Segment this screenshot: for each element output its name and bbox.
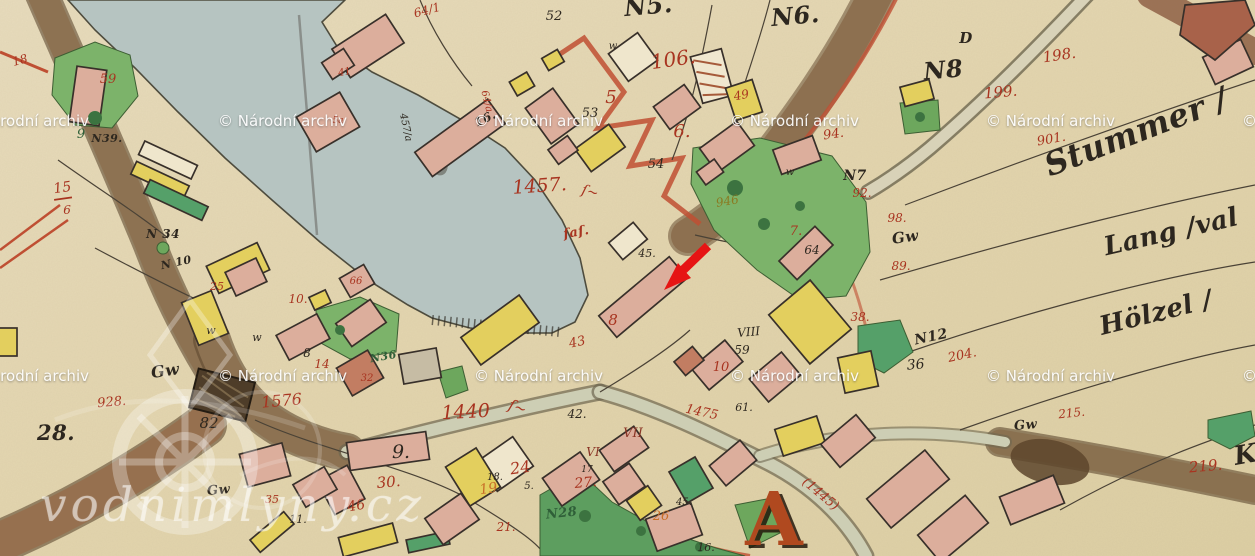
map-label: A <box>744 477 804 556</box>
map-label: 53 <box>582 106 599 121</box>
map-label: w <box>252 331 262 344</box>
map-label: w <box>786 167 795 178</box>
map-label: 54 <box>648 157 665 172</box>
map-label: 6 <box>63 203 71 217</box>
map-label: w <box>609 41 618 52</box>
map-label: 6. <box>673 121 690 142</box>
map-label: 24 <box>508 457 532 479</box>
map-label: Gw <box>1013 417 1038 434</box>
map-label: N6. <box>769 0 821 32</box>
map-label: N39. <box>90 132 122 145</box>
map-label: 8 <box>303 346 311 360</box>
map-label: 5a <box>332 116 343 126</box>
cadastral-map-image[interactable]: N5.106.N6.DN8198.199.901.Stummer /Lang /… <box>0 0 1255 556</box>
map-label: 92. <box>852 186 871 200</box>
map-label: 11. <box>289 513 307 526</box>
map-label: 26 <box>652 509 670 524</box>
map-label: 45. <box>637 247 656 260</box>
map-label: 7. <box>790 224 802 239</box>
map-label: Gw <box>891 226 921 248</box>
map-label: 27. <box>573 474 598 492</box>
map-label: 8 <box>608 311 618 329</box>
map-label: VII <box>623 426 644 441</box>
map-label: 14 <box>314 357 329 371</box>
map-label: N8 <box>921 53 964 85</box>
map-label: 215. <box>1057 405 1086 422</box>
map-label: 94. <box>822 126 845 144</box>
map-label: 219. <box>1187 456 1223 477</box>
map-label: 5 <box>605 87 616 108</box>
map-label: 89. <box>891 259 910 273</box>
map-label: 28. <box>36 420 75 445</box>
map-label: 98. <box>887 211 906 225</box>
map-label: 17 <box>581 465 593 475</box>
map-drawing: N5.106.N6.DN8198.199.901.Stummer /Lang /… <box>0 0 1255 556</box>
map-label: 52 <box>546 9 563 24</box>
map-label: 59 <box>100 72 117 87</box>
map-label: 10. <box>288 292 307 306</box>
map-label: 5. <box>524 481 534 492</box>
map-label: 64 <box>804 243 819 257</box>
map-label: VIII <box>737 324 761 340</box>
map-label: 59 <box>734 343 750 357</box>
map-label: 32 <box>361 373 374 384</box>
map-label: 16. <box>697 541 715 554</box>
map-label: 1440 <box>441 400 490 425</box>
map-label: 21. <box>495 520 515 534</box>
map-label: 61. <box>735 401 753 414</box>
map-label: 25 <box>209 280 224 293</box>
map-label: N7 <box>842 168 867 184</box>
map-label: 36 <box>906 356 925 373</box>
map-label: 10 <box>713 360 730 375</box>
map-label: 38. <box>850 310 869 324</box>
map-label: 1457. <box>512 173 568 199</box>
map-label: 66 <box>350 276 363 287</box>
map-label: 19 <box>479 480 499 498</box>
map-label: D <box>958 29 973 47</box>
map-label: 46 <box>345 497 366 516</box>
map-label: 9 <box>77 127 85 142</box>
map-label: VI <box>586 445 600 459</box>
map-label: 30. <box>376 472 401 492</box>
map-label: 42. <box>566 407 586 421</box>
map-label: 199. <box>983 82 1018 103</box>
map-label: 9. <box>392 441 410 463</box>
map-label: 41 <box>336 66 351 79</box>
map-label: 45. <box>675 497 692 508</box>
map-label: 49 <box>732 87 751 104</box>
map-label: 15 <box>53 179 73 197</box>
map-label: N 34 <box>145 227 180 241</box>
